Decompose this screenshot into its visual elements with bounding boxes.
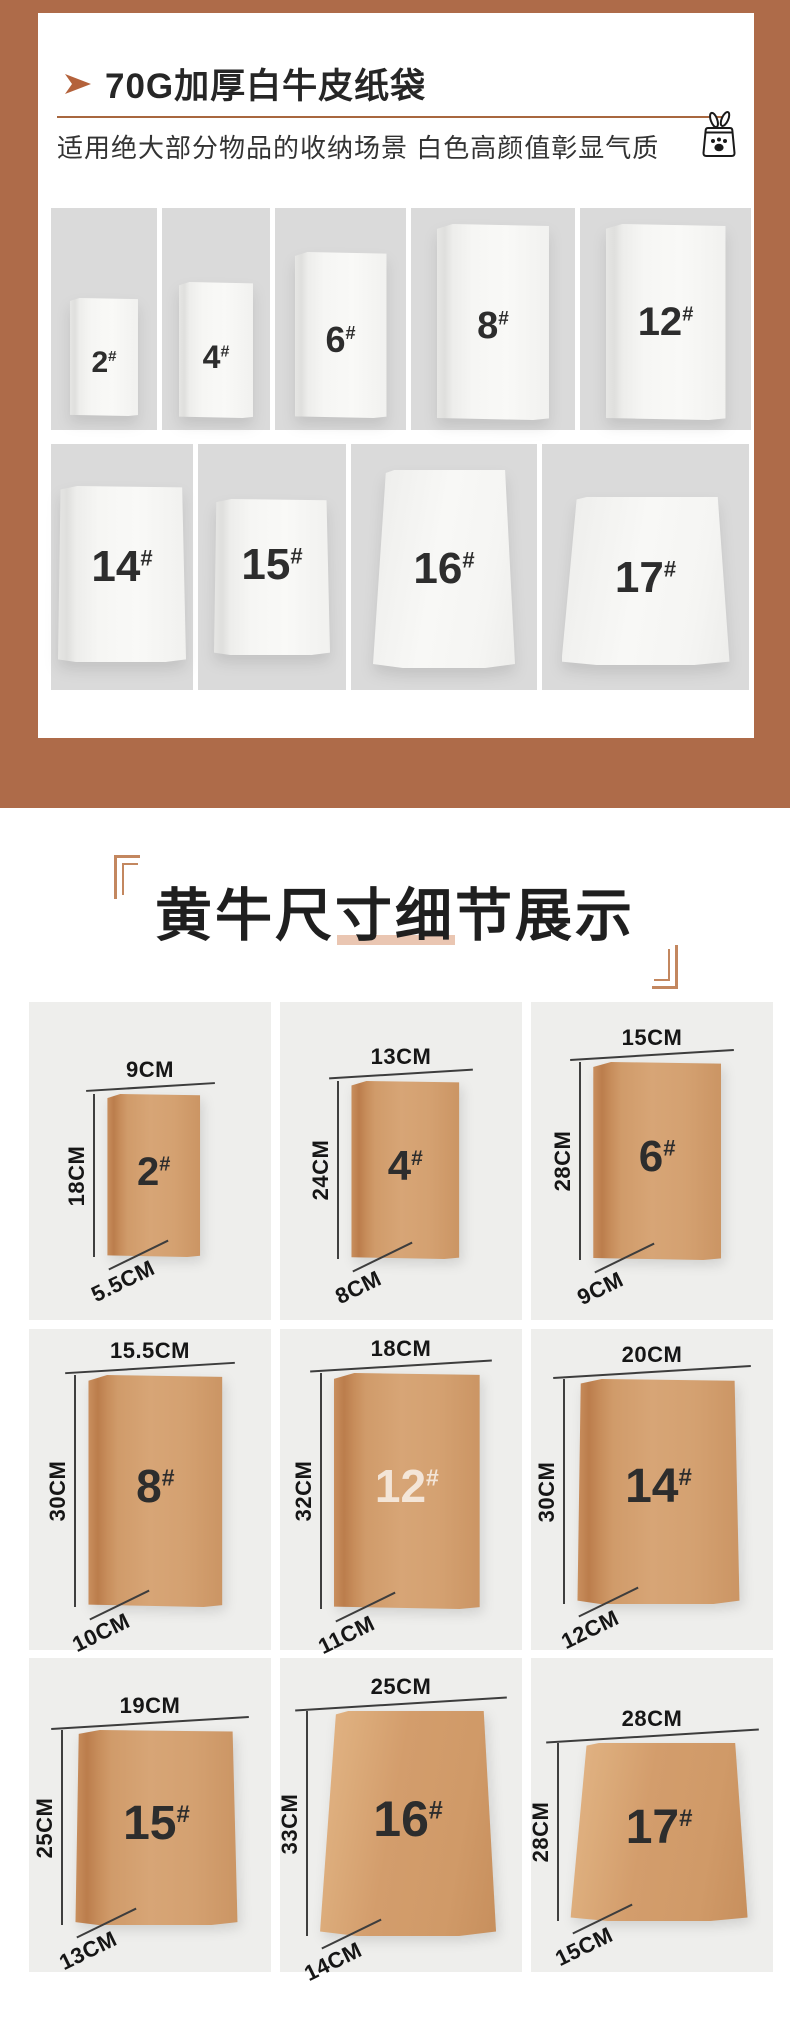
bag-number-label: 6# [639,1135,676,1179]
bag-number-label: 8# [136,1463,174,1509]
white-bag-6: 6# [295,252,387,418]
width-dimension: 20CM [553,1342,751,1373]
bag-number-label: 17# [626,1804,693,1852]
width-dimension: 15CM [570,1025,734,1056]
kraft-bag-17: 17# [571,1743,748,1921]
bag-number-label: 12# [638,302,694,342]
bag-number-label: 6# [325,322,355,358]
white-bag-cell-16: 16# [351,444,537,690]
kraft-size-cell-8: 15.5CM 30CM 8# 10CM [29,1329,271,1650]
width-dimension: 13CM [329,1044,473,1075]
white-bag-cell-12: 12# [580,208,751,430]
white-bag-cell-15: 15# [198,444,346,690]
kraft-bag-16: 16# [320,1711,496,1936]
dimension-line [65,1362,235,1374]
white-bag-cell-14: 14# [51,444,193,690]
kraft-size-cell-14: 20CM 30CM 14# 12CM [531,1329,773,1650]
size-detail-section: 黄牛尺寸细节展示 9CM 18CM 2# 5.5CM 13CM 24CM 4# [0,808,790,2029]
height-dimension: 24CM [337,1081,339,1259]
width-dimension: 28CM [546,1706,759,1737]
kraft-size-cell-2: 9CM 18CM 2# 5.5CM [29,1002,271,1320]
bag-number-label: 15# [241,543,302,587]
bag-number-label: 14# [91,545,152,589]
bag-number-label: 17# [615,556,676,600]
bag-number-label: 12# [375,1463,439,1509]
bag-number-label: 16# [413,547,474,591]
height-dimension: 30CM [74,1375,76,1607]
bag-number-label: 4# [388,1145,423,1187]
kraft-size-cell-17: 28CM 28CM 17# 15CM [531,1658,773,1972]
hero-subtitle: 适用绝大部分物品的收纳场景 白色高颜值彰显气质 [57,128,659,165]
frame-border-top [0,0,790,13]
white-bag-cell-8: 8# [411,208,575,430]
hero-title: 70G加厚白牛皮纸袋 [105,58,426,109]
width-dimension: 15.5CM [65,1338,235,1369]
kraft-size-cell-6: 15CM 28CM 6# 9CM [531,1002,773,1320]
kraft-grid-row-1: 9CM 18CM 2# 5.5CM 13CM 24CM 4# 8CM 15CM [29,1002,773,1320]
height-dimension: 28CM [579,1062,581,1260]
white-bag-8: 8# [437,224,549,420]
divider-line [57,116,728,118]
product-detail-image: 70G加厚白牛皮纸袋 适用绝大部分物品的收纳场景 白色高颜值彰显气质 [0,0,790,2029]
bag-number-label: 8# [477,307,509,345]
white-bag-15: 15# [214,499,330,655]
hero-title-row: 70G加厚白牛皮纸袋 [64,58,426,109]
bag-number-label: 14# [625,1463,692,1511]
size-section-title: 黄牛尺寸细节展示 [0,870,790,952]
white-bag-cell-6: 6# [275,208,406,430]
kraft-size-cell-4: 13CM 24CM 4# 8CM [280,1002,522,1320]
white-bags-row-1: 2# 4# 6# 8# [51,208,751,430]
kraft-size-cell-12: 18CM 32CM 12# 11CM [280,1329,522,1650]
white-bag-cell-17: 17# [542,444,749,690]
height-dimension: 32CM [320,1373,322,1609]
pet-food-bag-icon [697,110,741,160]
dimension-line [329,1069,473,1080]
height-dimension: 25CM [61,1730,63,1925]
kraft-bag-15: 15# [75,1730,237,1925]
width-dimension: 18CM [310,1336,492,1367]
kraft-bag-6: 6# [593,1062,721,1260]
dimension-line [86,1082,215,1092]
white-bag-cell-4: 4# [162,208,270,430]
white-bags-row-2: 14# 15# 16# 17# [51,444,749,690]
arrow-right-icon [64,71,92,97]
dimension-line [553,1365,751,1379]
hero-section: 70G加厚白牛皮纸袋 适用绝大部分物品的收纳场景 白色高颜值彰显气质 [0,0,790,808]
dimension-line [570,1049,734,1061]
bag-number-label: 2# [91,348,116,378]
white-bag-4: 4# [179,282,253,418]
white-bag-12: 12# [606,224,726,420]
frame-border-bottom [0,738,790,808]
white-bag-17: 17# [562,497,730,665]
dimension-line [310,1359,492,1372]
kraft-size-cell-15: 19CM 25CM 15# 13CM [29,1658,271,1972]
height-dimension: 30CM [563,1379,565,1604]
height-dimension: 33CM [306,1711,308,1936]
kraft-bag-14: 14# [577,1379,739,1604]
width-dimension: 25CM [295,1674,507,1705]
width-dimension: 19CM [51,1693,249,1724]
white-bag-14: 14# [58,486,186,662]
height-dimension: 28CM [557,1743,559,1921]
bag-number-label: 2# [137,1152,170,1192]
kraft-bag-4: 4# [351,1081,459,1259]
bag-number-label: 16# [373,1794,443,1844]
frame-border-left [0,0,38,808]
white-bag-16: 16# [373,470,515,668]
kraft-grid-row-3: 19CM 25CM 15# 13CM 25CM 33CM 16# 14CM 28… [29,1658,773,1972]
white-bag-2: 2# [70,298,138,416]
kraft-bag-2: 2# [107,1094,200,1257]
bag-number-label: 15# [123,1800,190,1848]
bag-number-label: 4# [203,341,230,373]
dimension-line [51,1716,249,1730]
kraft-size-cell-16: 25CM 33CM 16# 14CM [280,1658,522,1972]
kraft-bag-8: 8# [88,1375,222,1607]
kraft-grid-row-2: 15.5CM 30CM 8# 10CM 18CM 32CM 12# 11CM 2… [29,1329,773,1650]
white-bag-cell-2: 2# [51,208,157,430]
width-dimension: 9CM [86,1057,215,1088]
kraft-bag-12: 12# [334,1373,480,1609]
height-dimension: 18CM [93,1094,95,1257]
frame-border-right [754,0,790,808]
